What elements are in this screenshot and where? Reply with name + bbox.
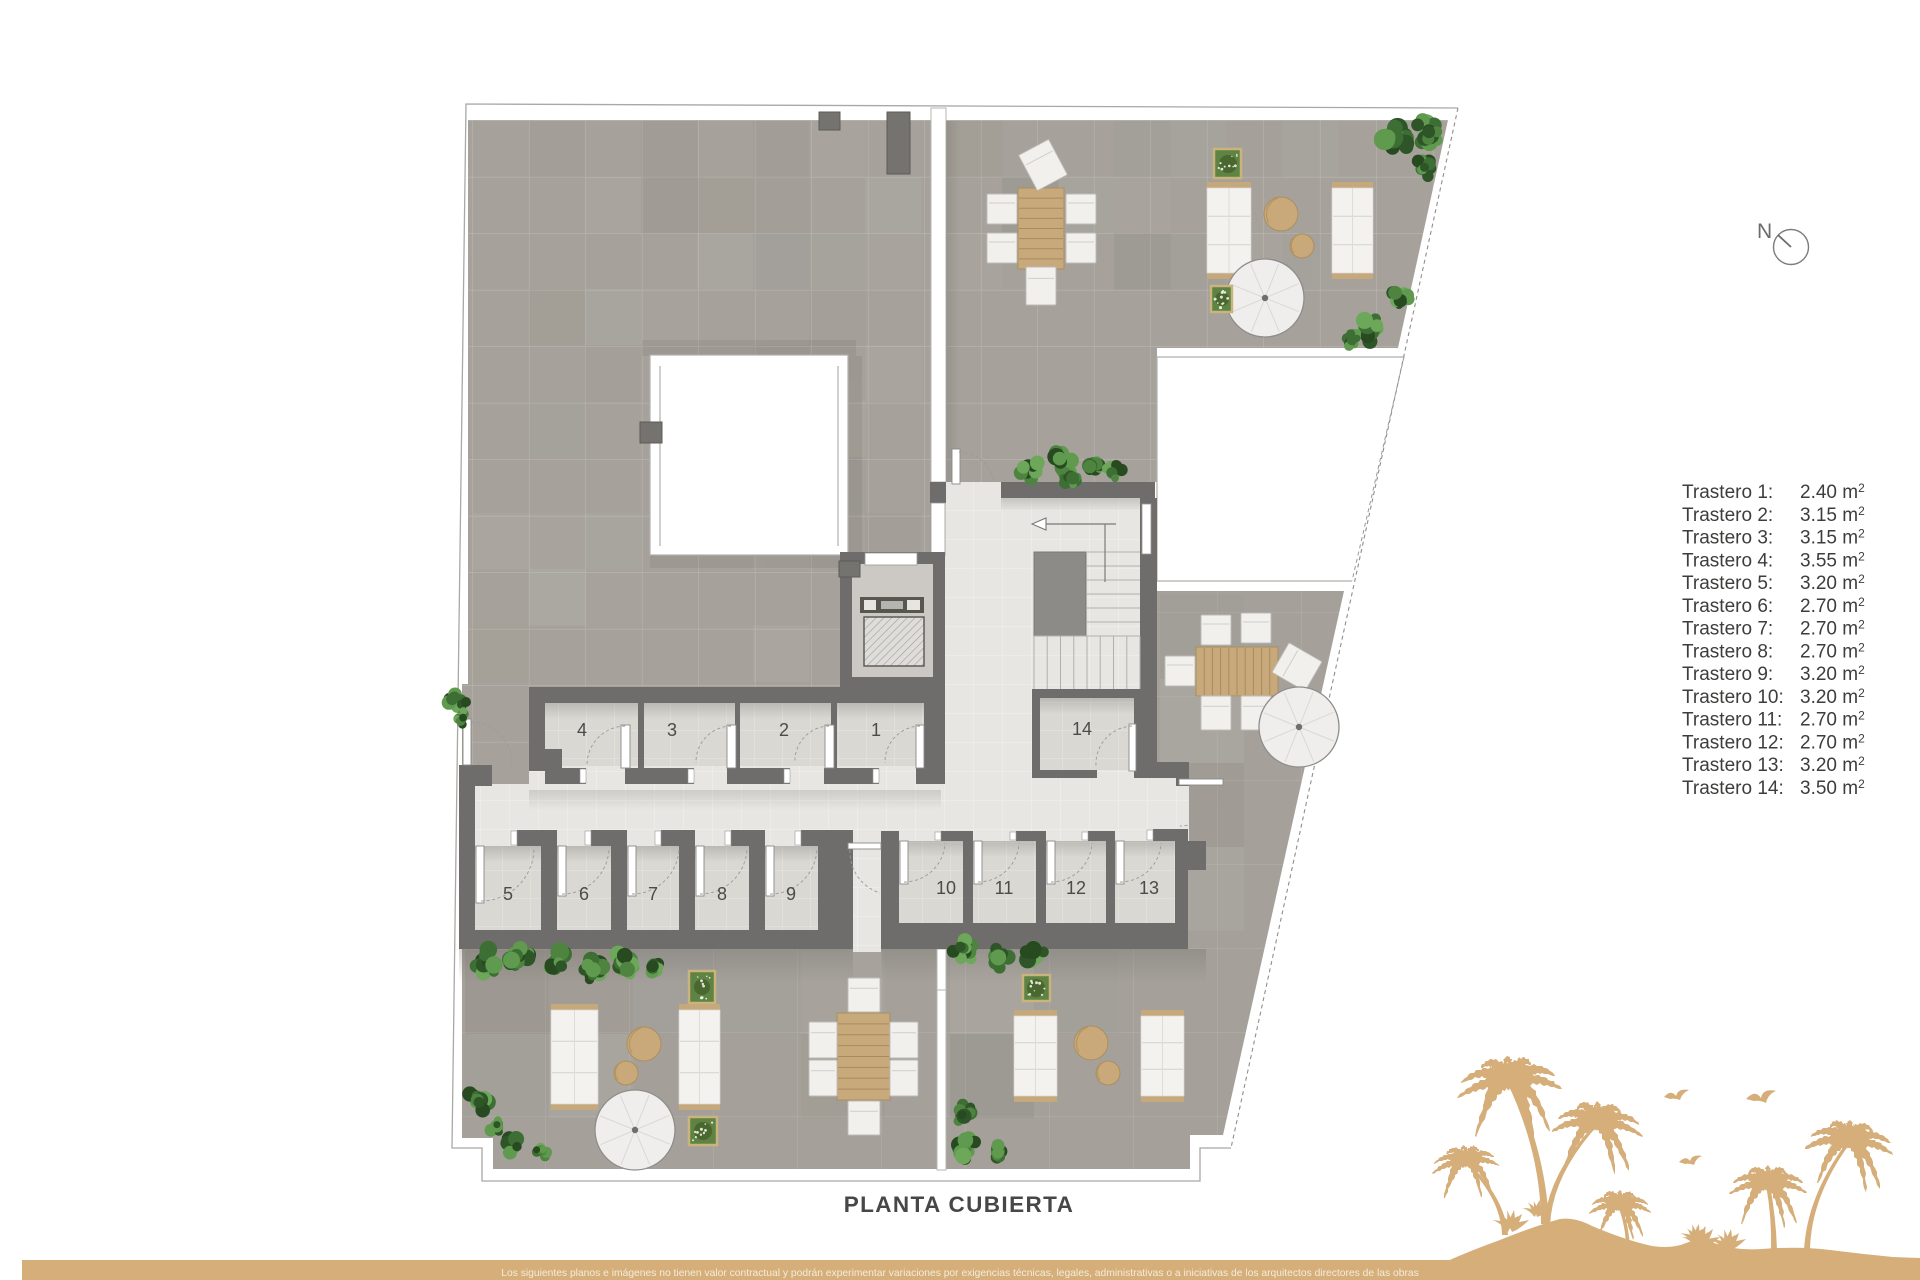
svg-text:1: 1 [871,720,881,740]
svg-text:3.20 m2: 3.20 m2 [1800,663,1865,685]
svg-text:Trastero 9:: Trastero 9: [1682,664,1773,685]
svg-text:Los siguientes planos e imágen: Los siguientes planos e imágenes no tien… [501,1268,1419,1279]
svg-text:Trastero 7:: Trastero 7: [1682,619,1773,640]
svg-text:3.15 m2: 3.15 m2 [1800,527,1865,549]
svg-text:3.15 m2: 3.15 m2 [1800,504,1865,526]
svg-text:8: 8 [717,884,727,904]
svg-text:Trastero 11:: Trastero 11: [1682,710,1782,731]
svg-text:2.70 m2: 2.70 m2 [1800,595,1865,617]
svg-text:7: 7 [648,884,658,904]
svg-text:Trastero 10:: Trastero 10: [1682,687,1784,708]
svg-text:12: 12 [1066,878,1086,898]
svg-text:N: N [1757,220,1772,243]
svg-text:Trastero 3:: Trastero 3: [1682,528,1773,549]
svg-text:3: 3 [667,720,677,740]
svg-text:6: 6 [579,884,589,904]
svg-text:11: 11 [995,878,1014,898]
svg-text:5: 5 [503,884,513,904]
svg-text:Trastero 1:: Trastero 1: [1682,482,1773,503]
svg-text:9: 9 [786,884,796,904]
svg-text:3.50 m2: 3.50 m2 [1800,777,1865,799]
svg-text:3.20 m2: 3.20 m2 [1800,754,1865,776]
svg-text:PLANTA CUBIERTA: PLANTA CUBIERTA [844,1192,1075,1217]
svg-text:3.20 m2: 3.20 m2 [1800,572,1865,594]
svg-text:2.70 m2: 2.70 m2 [1800,709,1865,731]
svg-text:Trastero 8:: Trastero 8: [1682,641,1773,662]
svg-text:Trastero 13:: Trastero 13: [1682,755,1784,776]
svg-text:14: 14 [1072,719,1092,739]
svg-text:2.70 m2: 2.70 m2 [1800,731,1865,753]
svg-text:3.20 m2: 3.20 m2 [1800,686,1865,708]
svg-text:4: 4 [577,720,587,740]
svg-text:Trastero 6:: Trastero 6: [1682,596,1773,617]
svg-text:10: 10 [936,878,956,898]
svg-text:2: 2 [779,720,789,740]
svg-text:Trastero 4:: Trastero 4: [1682,550,1773,571]
svg-text:Trastero 14:: Trastero 14: [1682,778,1784,799]
svg-text:2.40 m2: 2.40 m2 [1800,481,1865,503]
svg-text:2.70 m2: 2.70 m2 [1800,618,1865,640]
svg-text:3.55 m2: 3.55 m2 [1800,549,1865,571]
svg-text:Trastero 12:: Trastero 12: [1682,732,1784,753]
svg-text:13: 13 [1139,878,1159,898]
svg-text:Trastero 5:: Trastero 5: [1682,573,1773,594]
svg-text:Trastero 2:: Trastero 2: [1682,505,1773,526]
svg-text:2.70 m2: 2.70 m2 [1800,640,1865,662]
